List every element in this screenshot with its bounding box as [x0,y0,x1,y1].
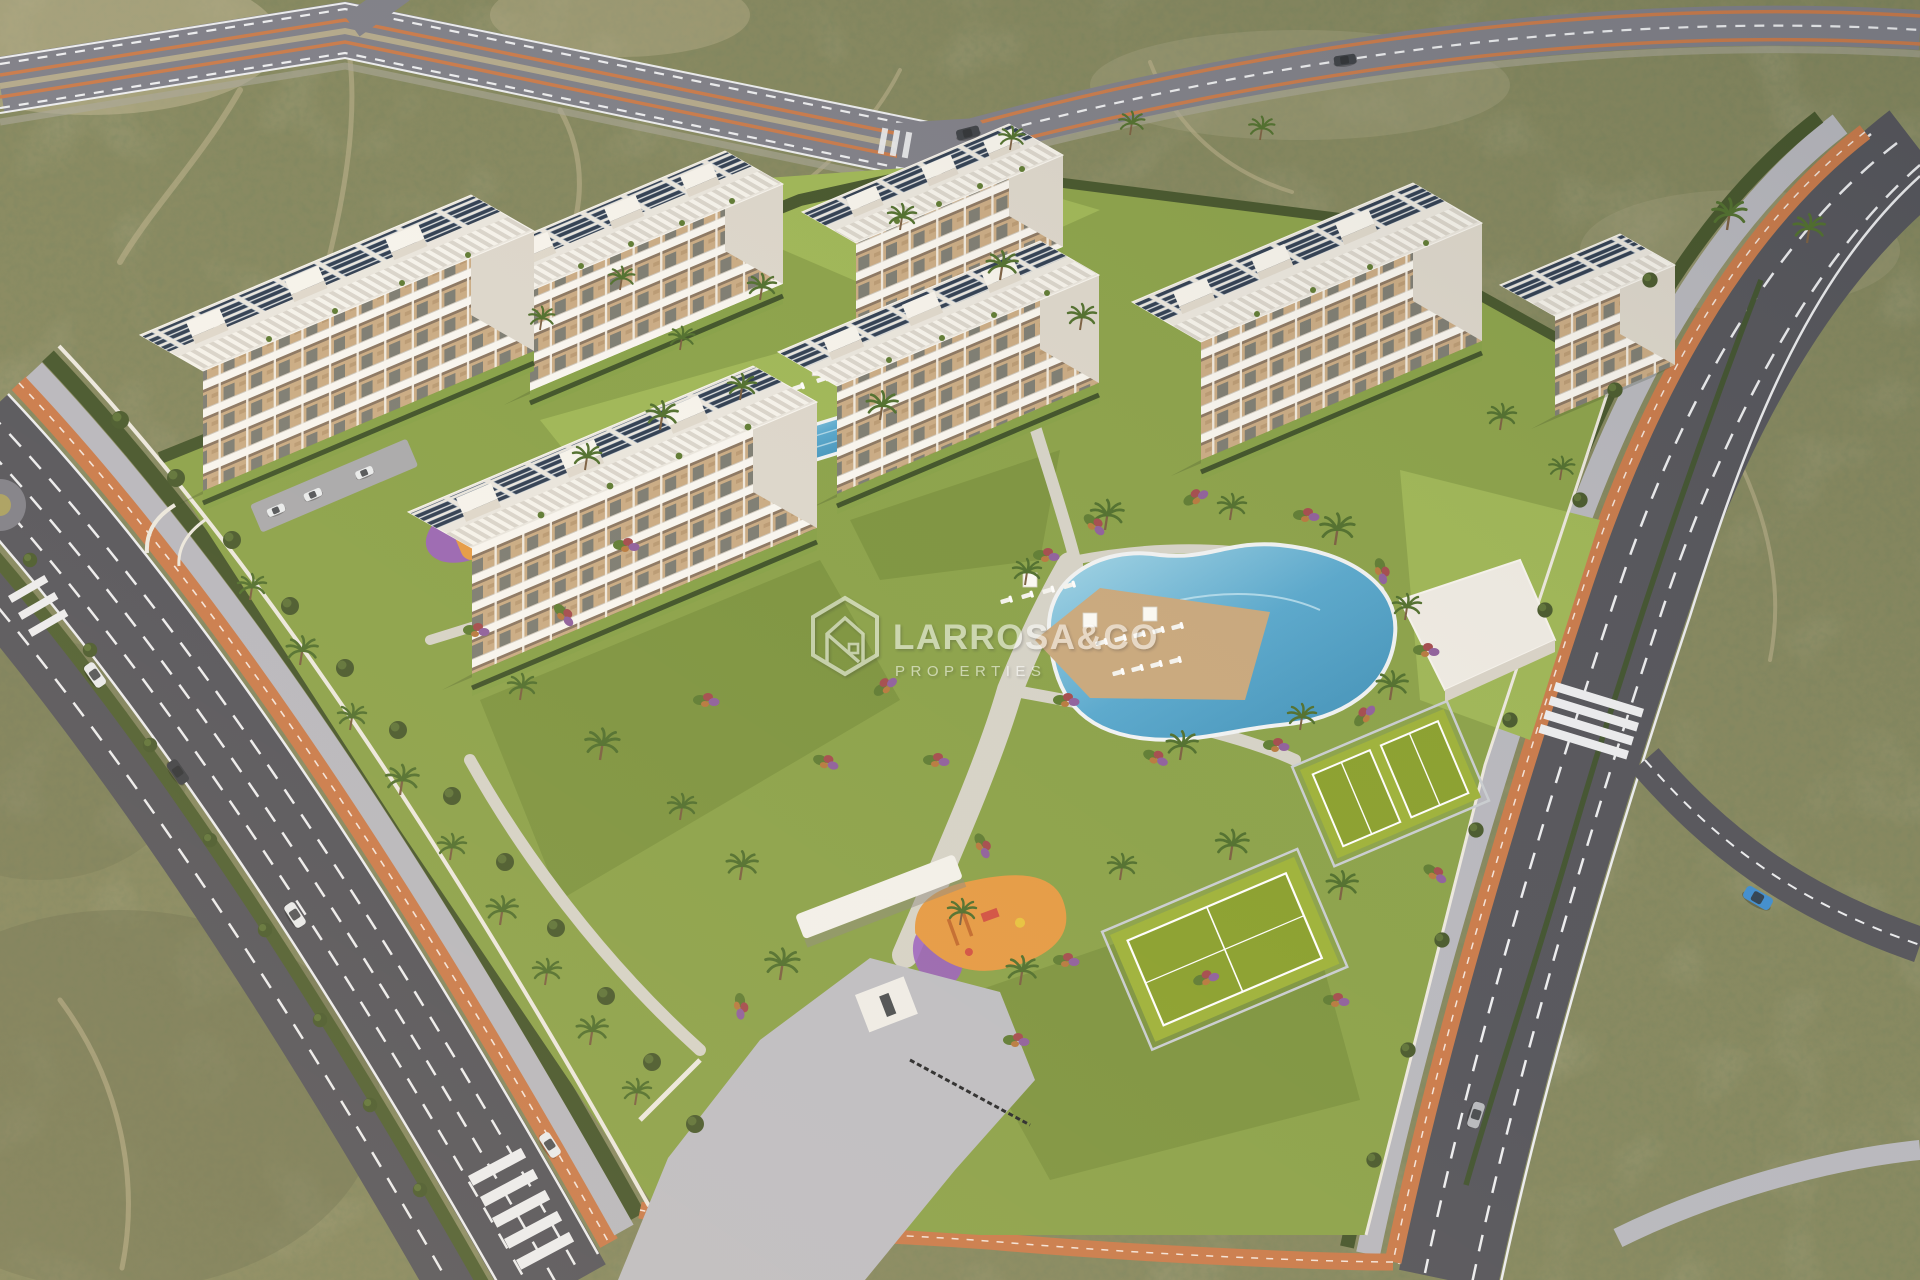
brand-tagline: PROPERTIES [895,663,1046,680]
aerial-render: LARROSA&CO PROPERTIES [0,0,1920,1280]
brand-name: LARROSA&CO [893,618,1159,657]
site-render-canvas: LARROSA&CO PROPERTIES [0,0,1920,1280]
